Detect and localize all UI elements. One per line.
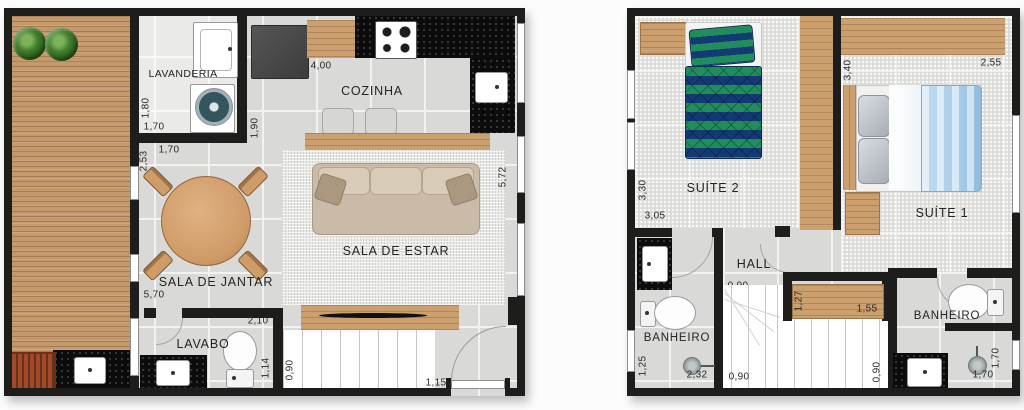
wardrobe-icon	[800, 14, 833, 230]
lavanderia-right-wall	[237, 16, 247, 137]
right-wall-pier	[508, 297, 525, 325]
bathroom-sink-icon	[642, 246, 668, 282]
dim-banheiro-left-w: 2,32	[687, 370, 708, 381]
double-bed-icon	[843, 85, 980, 190]
lavabo-right-wall	[273, 308, 283, 388]
dim-estar-h: 5,72	[498, 167, 509, 188]
hall-north-wall	[712, 228, 723, 237]
banheiro-right-window	[1012, 340, 1020, 370]
room-label-banheiro-left: BANHEIRO	[644, 332, 710, 344]
suite2-window	[627, 122, 635, 170]
dim-entry-w: 1,15	[426, 378, 447, 389]
hall-north-wall	[635, 228, 672, 237]
room-label-cozinha: COZINHA	[341, 84, 403, 98]
shower-partition-wall	[945, 323, 1012, 331]
lavabo-sink-icon	[156, 360, 190, 386]
kitchen-counter-wood	[307, 20, 355, 58]
suite-divider-wall	[833, 16, 841, 230]
floorplan-canvas: LAVANDERIA 1,80 1,70 2,53 1,70 COZINHA 4…	[0, 0, 1024, 410]
plant-icon	[45, 28, 78, 61]
dim-lavabo-w: 2,10	[248, 316, 269, 327]
dining-table-icon	[161, 176, 251, 266]
dim-closet-w: 1,55	[857, 304, 878, 315]
dim-stairs-w: 0,90	[729, 372, 750, 383]
room-label-suite2: SUÍTE 2	[687, 181, 740, 195]
room-label-banheiro-right: BANHEIRO	[914, 310, 980, 322]
dim-suite2-w: 3,05	[645, 211, 666, 222]
dim-banheiro-left-h: 1,25	[638, 356, 649, 377]
right-wall-window	[517, 223, 525, 296]
dim-lavanderia-h: 1,80	[141, 98, 152, 119]
toilet-icon	[654, 296, 696, 330]
tv-icon	[319, 313, 427, 318]
dim-banheiro-right-w: 1,70	[973, 370, 994, 381]
outer-wall-left	[4, 8, 12, 396]
cooktop-icon	[375, 21, 417, 59]
hall-west-wall	[714, 237, 723, 388]
ground-floor-plan: LAVANDERIA 1,80 1,70 2,53 1,70 COZINHA 4…	[4, 8, 525, 396]
lavabo-top-wall-stub	[144, 308, 156, 318]
dim-banheiro-right-h: 1,70	[991, 348, 1002, 369]
dim-stairs-w: 0,90	[285, 360, 296, 381]
room-label-sala-de-jantar: SALA DE JANTAR	[159, 275, 273, 289]
suite1-window	[1012, 115, 1020, 213]
toilet-tank-icon	[226, 369, 254, 388]
refrigerator-icon	[251, 25, 309, 79]
room-label-sala-de-estar: SALA DE ESTAR	[343, 244, 450, 258]
room-label-hall: HALL	[737, 257, 771, 271]
room-label-suite1: SUÍTE 1	[916, 206, 969, 220]
dim-jantar-h: 5,70	[144, 290, 165, 301]
dim-cozinha-w: 4,00	[311, 61, 332, 72]
hall-north-wall-stub	[775, 226, 790, 237]
outer-wall-top	[627, 8, 1020, 16]
single-bed-icon	[685, 22, 760, 157]
outer-wall-bottom	[627, 388, 1020, 396]
washing-machine-icon	[190, 84, 235, 133]
suite2-window	[627, 70, 635, 119]
closet-north-wall	[783, 272, 890, 281]
dim-jantar-wall-w: 1,70	[159, 145, 180, 156]
closet-west-wall	[783, 281, 792, 321]
lavanderia-bottom-wall	[130, 133, 247, 143]
deck-floor	[12, 16, 130, 388]
staircase	[283, 330, 435, 388]
dim-cozinha-h: 1,90	[250, 118, 261, 139]
banheiro-right-north-wall	[967, 268, 1012, 278]
deck-window	[130, 254, 139, 282]
dim-lavanderia-w: 1,70	[144, 122, 165, 133]
deck-sink-icon	[74, 357, 106, 384]
room-label-lavanderia: LAVANDERIA	[149, 68, 218, 80]
nightstand-icon	[845, 192, 880, 235]
entry-door-arc	[451, 326, 506, 381]
upper-floor-plan: SUÍTE 2 3,30 3,05 SUÍTE 1 3,40 2,55	[627, 8, 1020, 396]
kitchen-sink-icon	[475, 72, 508, 103]
bar-stool-icon	[322, 108, 354, 135]
toilet-tank-icon	[987, 289, 1004, 316]
bar-stool-icon	[365, 108, 397, 135]
banheiro-right-north-wall	[897, 268, 937, 278]
entry-door-leaf	[451, 380, 505, 389]
dim-jantar-wall-h: 2,53	[139, 151, 150, 172]
outer-wall-bottom	[4, 388, 451, 396]
right-wall-window	[517, 23, 525, 103]
dim-lavabo-h: 1,14	[261, 358, 272, 379]
dining-chair-icon	[237, 166, 269, 198]
sofa-icon	[312, 163, 480, 235]
bathroom-sink-icon	[907, 358, 942, 387]
room-label-lavabo: LAVABO	[177, 337, 230, 351]
deck-door-leaf	[130, 318, 139, 376]
right-wall-window	[517, 136, 525, 193]
dim-suite2-h: 3,30	[638, 180, 649, 201]
dim-suite1-h: 3,40	[843, 60, 854, 81]
dim-stairs-side-h: 0,90	[872, 362, 883, 383]
banheiro-left-window	[627, 330, 635, 372]
plant-icon	[13, 27, 46, 60]
nightstand-icon	[640, 22, 686, 55]
dim-closet-h: 1,27	[794, 291, 805, 312]
barbecue-grill-icon	[8, 352, 56, 392]
outer-wall-top	[4, 8, 525, 16]
wardrobe-icon	[837, 18, 1005, 55]
dim-suite1-w: 2,55	[981, 58, 1002, 69]
dining-chair-icon	[142, 166, 174, 198]
banheiro-left-door-arc	[672, 237, 713, 278]
